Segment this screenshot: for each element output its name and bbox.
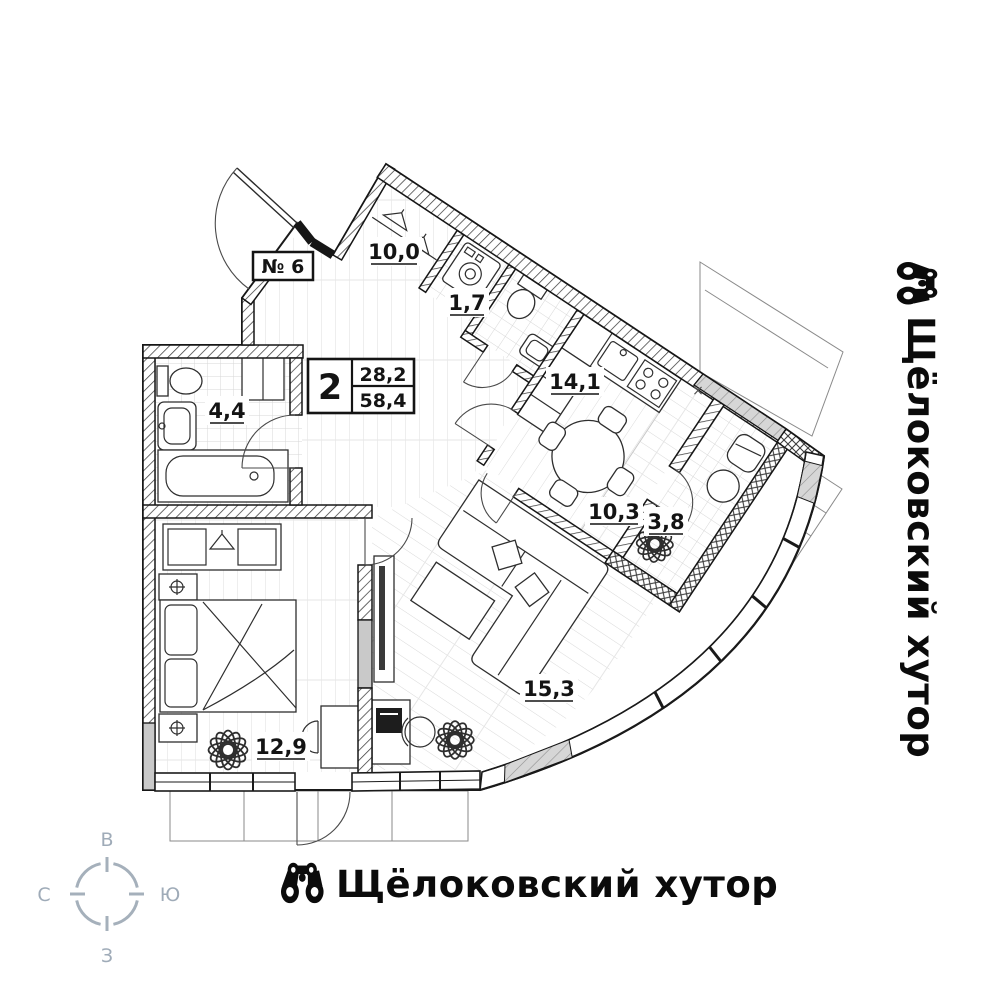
tv-icon: [379, 566, 385, 670]
compass-rose: [70, 857, 144, 931]
cross-mark: ×: [692, 383, 704, 399]
computer-icon: [376, 708, 402, 733]
wc-area: 1,7: [448, 291, 485, 315]
rooms-count: 2: [318, 368, 342, 408]
kitchen-area: 14,1: [549, 370, 601, 394]
hallway-area: 10,0: [368, 240, 420, 264]
compass-bottom: З: [101, 945, 113, 967]
label-hallway: 10,0: [366, 237, 422, 266]
corridor-area: 10,3: [588, 500, 640, 524]
brand-bottom: Щёлоковский хутор: [281, 863, 778, 906]
bedroom-area: 12,9: [255, 735, 307, 759]
unit-number-box: № 6: [253, 252, 313, 280]
compass-right: Ю: [160, 884, 181, 906]
label-balcony: 3,8: [644, 507, 688, 536]
bedroom-balcony-door: [297, 792, 350, 845]
bedroom-desk: [321, 706, 363, 768]
toilet-icon: [170, 368, 202, 394]
compass-top: В: [100, 829, 113, 851]
binoculars-icon: [897, 262, 937, 305]
binoculars-icon: [281, 863, 324, 903]
living-area-total: 28,2: [360, 364, 407, 386]
label-corridor: 10,3: [585, 497, 643, 526]
bathtub-icon: [158, 450, 288, 502]
brand-name-vertical: Щёлоковский хутор: [899, 316, 942, 758]
unit-number: № 6: [262, 256, 305, 278]
total-area: 58,4: [360, 390, 407, 412]
label-bedroom: 12,9: [252, 732, 310, 761]
summary-box: 2 28,2 58,4: [308, 359, 414, 413]
label-bathroom: 4,4: [205, 396, 249, 425]
label-wc: 1,7: [445, 288, 489, 317]
living-area: 15,3: [523, 677, 575, 701]
compass-left: С: [37, 884, 50, 906]
double-bed: [160, 600, 296, 712]
floorplan-canvas: 10,0 1,7 4,4 14,1 10,3 3,8: [0, 0, 1000, 1000]
label-kitchen: 14,1: [546, 367, 604, 396]
bathroom-area: 4,4: [208, 399, 245, 423]
lower-balcony: [170, 791, 468, 841]
balcony-area: 3,8: [647, 510, 684, 534]
floorplan-page: 10,0 1,7 4,4 14,1 10,3 3,8: [0, 0, 1000, 1000]
compass-letters: В Ю З С: [37, 829, 180, 967]
brand-name: Щёлоковский хутор: [336, 863, 778, 906]
brand-right-vertical: Щёлоковский хутор: [897, 262, 942, 758]
label-living: 15,3: [520, 674, 578, 703]
toilet-tank: [157, 366, 168, 396]
